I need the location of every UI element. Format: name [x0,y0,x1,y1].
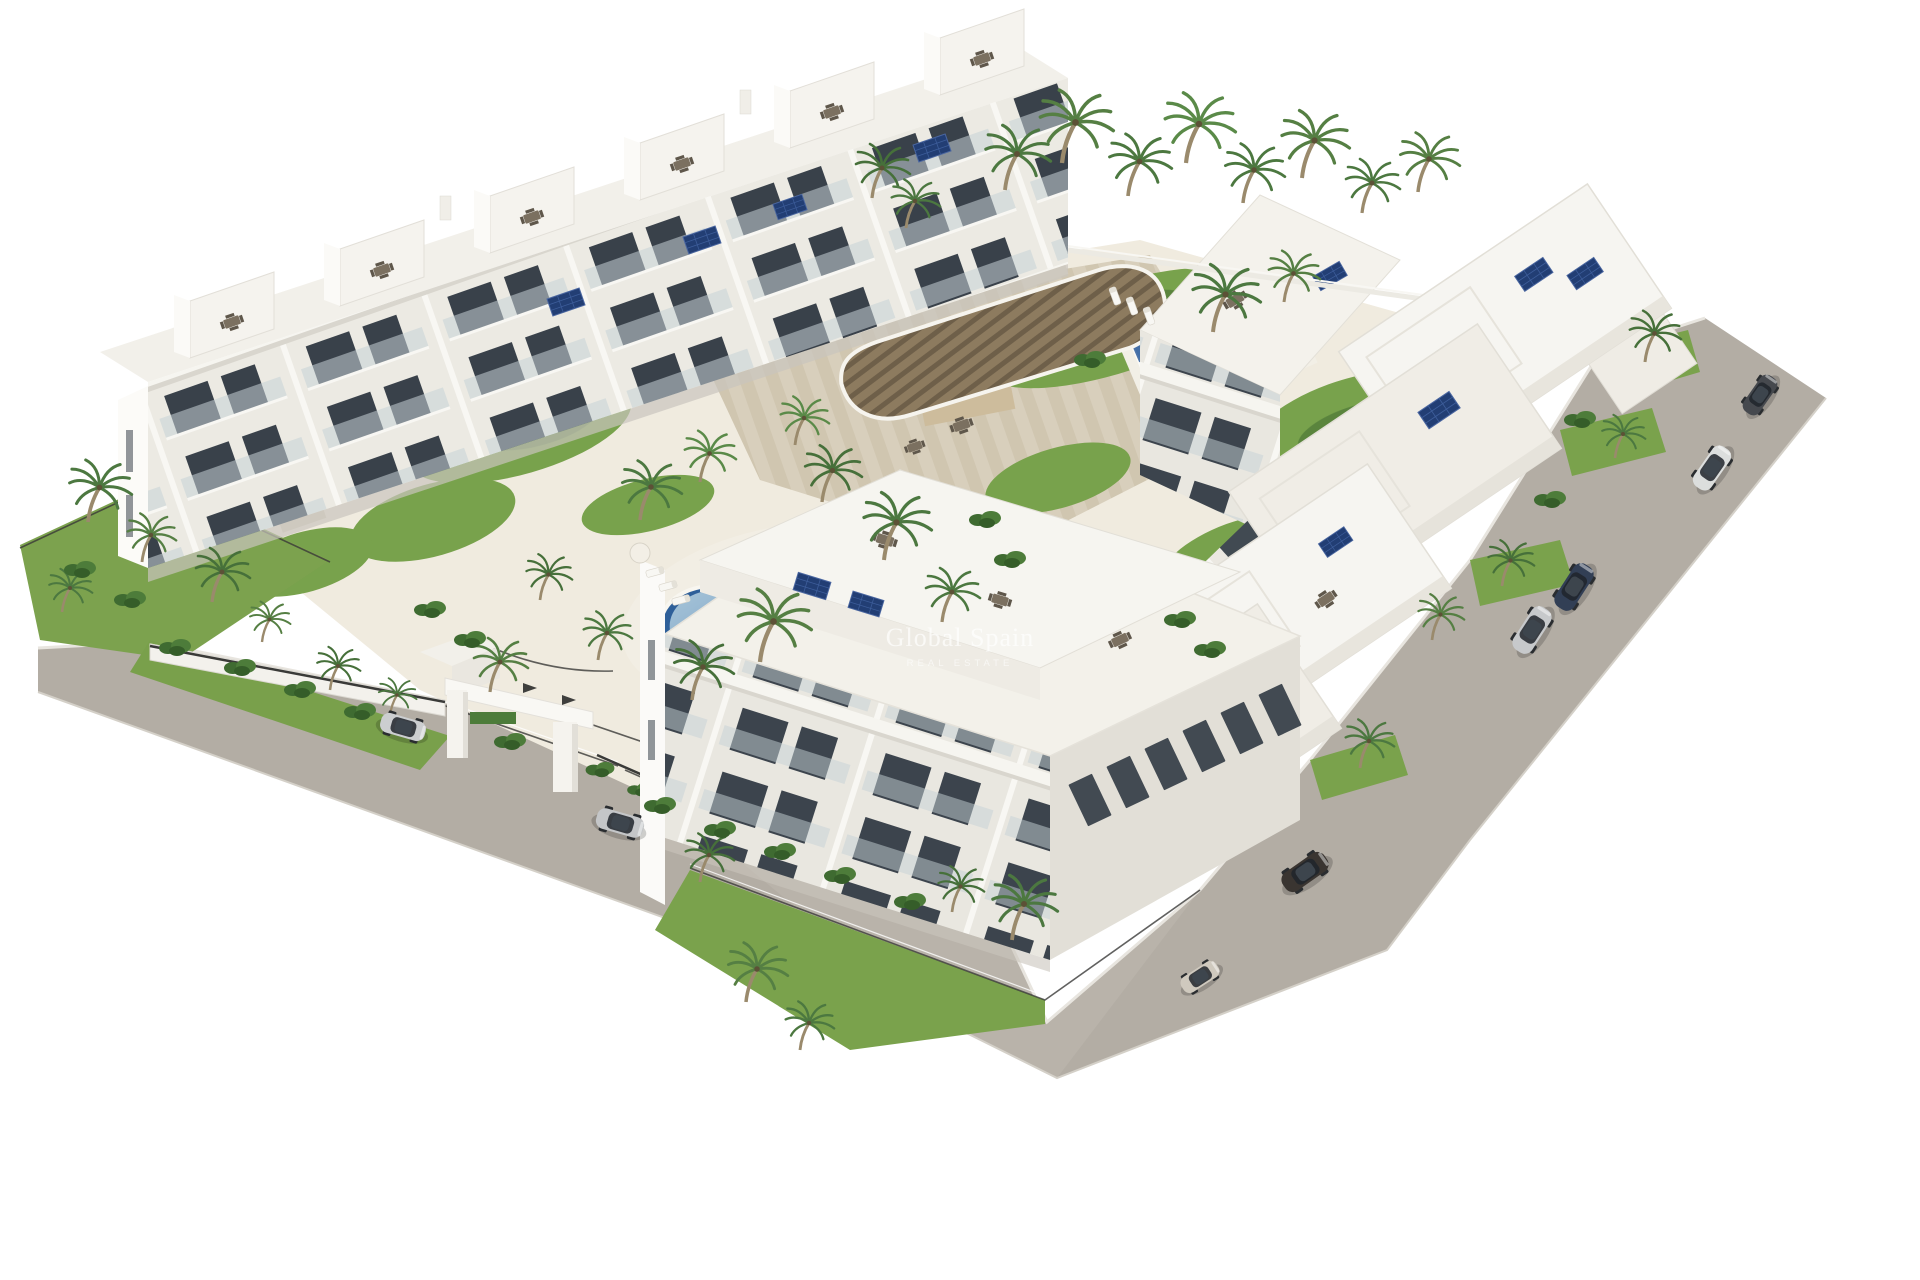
architectural-render: Global Spain REAL ESTATE [0,0,1920,1280]
watermark-subtitle: REAL ESTATE [907,658,1014,669]
scene-svg: Global Spain REAL ESTATE [0,0,1920,1280]
watermark: Global Spain REAL ESTATE [886,623,1035,669]
watermark-title: Global Spain [886,623,1035,652]
